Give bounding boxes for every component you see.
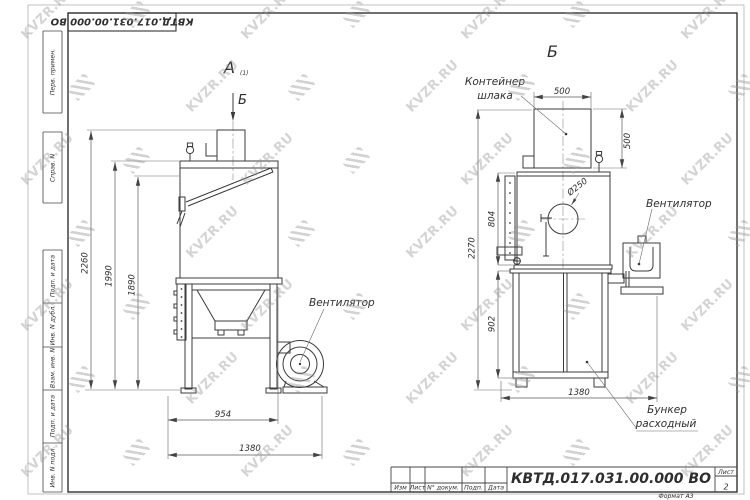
section-arrow-label: Б bbox=[238, 93, 247, 108]
dim-width: 1380 bbox=[568, 388, 590, 398]
left-margin-stamp-labels: Перв. примен. Справ. N Подп. и дата Инв.… bbox=[49, 49, 57, 488]
margin-label: Подп. и дата bbox=[50, 255, 57, 297]
front-fan-label: Вентилятор bbox=[309, 297, 375, 309]
leader-arrow-icon bbox=[572, 198, 577, 205]
margin-label: Справ. N bbox=[50, 153, 57, 182]
titleblock-col: N° докум. bbox=[427, 484, 459, 492]
container-label-line1: Контейнер bbox=[465, 76, 525, 88]
dim-container-height: 500 bbox=[623, 133, 633, 149]
front-dims: 2260 1990 1890 954 1380 bbox=[81, 130, 323, 459]
engineering-drawing: КВТД.017.031.00.000 ВО Перв. примен. Спр… bbox=[0, 0, 750, 500]
dim-total-height: 2270 bbox=[468, 237, 478, 259]
margin-label: Взам. инв. N bbox=[50, 348, 57, 389]
valve-icon bbox=[595, 155, 602, 162]
margin-label: Инв. N дубл. bbox=[49, 305, 57, 346]
side-fan-label: Вентилятор bbox=[646, 198, 712, 210]
dim-container-width: 500 bbox=[554, 87, 570, 97]
container-label-line2: шлака bbox=[477, 90, 513, 102]
dim-body-height: 1990 bbox=[105, 265, 115, 287]
titleblock-doc-number: КВТД.017.031.00.000 ВО bbox=[511, 471, 711, 487]
dim-total-height: 2260 bbox=[81, 252, 91, 274]
hopper-label-line2: расходный bbox=[635, 418, 697, 430]
drawing-sheet: КВТД.017.031.00.000 ВО Перв. примен. Спр… bbox=[0, 0, 750, 500]
dim-inner-height: 1890 bbox=[128, 274, 138, 296]
sheet-number: 2 bbox=[723, 483, 728, 492]
side-dims: 500 500 2270 804 902 1380 bbox=[468, 87, 658, 402]
titleblock-col: Лист bbox=[409, 485, 426, 492]
titleblock-col: Подп. bbox=[464, 485, 483, 492]
view-front-label: А bbox=[223, 58, 235, 77]
view-side: Б bbox=[465, 42, 712, 431]
sheet-label: Лист bbox=[717, 469, 734, 476]
valve-icon bbox=[186, 146, 193, 153]
margin-label: Перв. примен. bbox=[50, 49, 57, 95]
hopper-cabinet bbox=[513, 273, 608, 378]
dim-cabinet-height: 902 bbox=[488, 316, 498, 332]
margin-label: Инв. N подл. bbox=[50, 447, 57, 488]
titleblock-col: Изм bbox=[394, 485, 407, 492]
front-body bbox=[174, 130, 282, 393]
format-note: Формат А3 bbox=[658, 493, 693, 500]
dim-stand-width: 954 bbox=[215, 410, 231, 420]
dim-body-height: 804 bbox=[488, 211, 498, 227]
view-side-label: Б bbox=[547, 42, 558, 61]
dim-total-width: 1380 bbox=[239, 444, 261, 454]
section-arrow-icon bbox=[231, 112, 235, 121]
front-fan bbox=[277, 341, 328, 394]
side-body bbox=[497, 109, 612, 387]
view-front-label-note: (1) bbox=[240, 70, 249, 77]
bolt-dots bbox=[181, 288, 183, 338]
bolt-dots bbox=[509, 182, 511, 254]
titleblock-col: Дата bbox=[487, 485, 504, 492]
margin-label: Подп. и дата bbox=[50, 395, 57, 437]
slag-container bbox=[534, 109, 591, 168]
dim-nozzle: Ø250 bbox=[564, 176, 590, 199]
corner-stamp-doc-number: КВТД.017.031.00.000 ВО bbox=[50, 16, 193, 27]
view-front: А (1) Б bbox=[81, 58, 376, 459]
title-block: Изм Лист N° докум. Подп. Дата КВТД.017.0… bbox=[391, 467, 737, 500]
side-fan bbox=[608, 236, 663, 294]
hopper-label-line1: Бункер bbox=[647, 404, 687, 416]
